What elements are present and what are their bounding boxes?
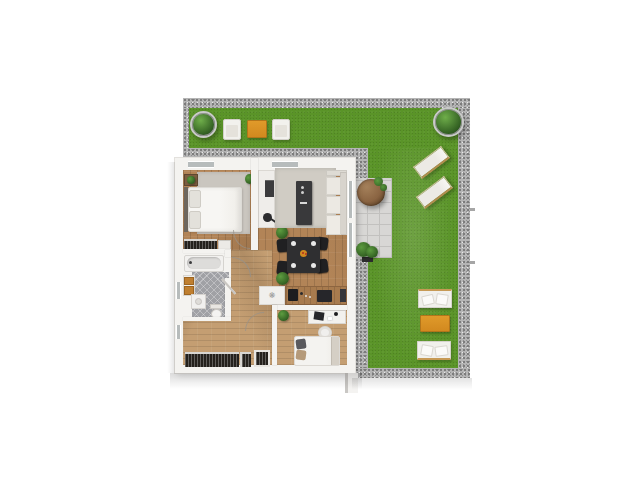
boundary-tick [470,261,475,264]
gravel-border-right [458,108,470,368]
wall-bathroom-bottom [183,317,231,321]
garden-table-right [420,315,450,332]
kitchen-counter: ❋ [259,286,347,305]
island-sink [301,191,304,194]
second-bedroom [277,310,347,365]
wicker-planter-leaves [380,184,387,191]
gravel-border-top [183,98,470,108]
planter-top-right [433,107,464,137]
garden-armchair-right [272,119,290,140]
bathroom [183,252,231,320]
fruit [305,253,307,255]
sofa [326,170,347,235]
plate [291,241,296,246]
bathtub-basin [187,257,221,269]
island-sink [301,186,304,189]
living-kitchen: ❋ [258,170,347,305]
bedroom-window [188,161,214,168]
faucet [300,292,303,295]
laptop [313,311,324,320]
sofa-pillow [421,294,435,306]
dining-plant [276,272,289,285]
wall-bedroom2-top [272,305,347,310]
hall-wardrobe-short [240,352,251,367]
hall-window-1 [176,282,181,299]
knife-block [340,289,346,302]
garden-sofa-1 [418,289,452,308]
wall-bathroom-right-upper [225,250,231,257]
sofa-cushion [326,177,341,195]
condiment [309,296,311,298]
gravel-border-inner-top [183,148,358,158]
wall-bedroom-living [251,158,258,250]
counter-white-cabinet: ❋ [259,286,285,305]
bed-pillow [189,211,201,229]
garden-armchair-left [223,119,241,140]
shadow-building-left [167,162,175,373]
plate [311,241,316,246]
plate [311,263,316,268]
plate [291,263,296,268]
cooktop [317,290,332,302]
kitchen-window [272,161,298,168]
patio-door-glass-1 [348,181,353,218]
bed-pillow [189,190,201,208]
gravel-border-bottom [355,368,470,378]
shadow-garden-bottom [352,378,472,390]
bed2-pillow-gray [295,338,306,349]
floorplan-render: ❋ [0,0,640,480]
wall-bedroom2-left [272,305,277,365]
boundary-tick [470,208,475,211]
gravel-corner-patio [355,148,368,178]
hob-icon: ❋ [269,292,276,300]
garden-table-top [247,120,267,138]
sofa-pillow [435,293,449,306]
patio-door-glass-2 [348,223,353,257]
shoe-cabinet [254,350,270,367]
planter-top-left [190,111,217,138]
sofa-cushion [326,196,341,214]
desk-paper [327,316,334,322]
patio-shrub [366,246,378,258]
wall-bedroom-bathroom [183,249,231,253]
shadow-building-bottom [170,373,362,389]
armchair-cushion [226,125,238,137]
garden-sofa-2 [417,341,451,360]
bathtub-faucet [189,261,192,264]
nightstand-plant [187,176,195,184]
sofa-pillow [434,345,448,357]
armchair-cushion [275,125,287,137]
hall-window-2 [176,325,181,339]
bed2-pillow-tan [295,349,306,360]
washer-door [195,298,202,305]
island-handle [300,202,307,204]
sofa-cushion [326,215,341,235]
fruit [302,252,304,254]
bed2-throw [331,337,339,365]
bedroom2-plant [278,310,289,321]
sofa-pillow [420,344,434,357]
gravel-border-inner-vertical [355,258,368,368]
kitchen-sink [288,289,298,301]
desk-lamp [334,312,338,316]
vanity-drawer [184,277,194,285]
condiment [305,295,307,297]
hall-wardrobe-long [185,352,239,367]
oven [265,180,274,197]
sofa-back [340,172,347,235]
